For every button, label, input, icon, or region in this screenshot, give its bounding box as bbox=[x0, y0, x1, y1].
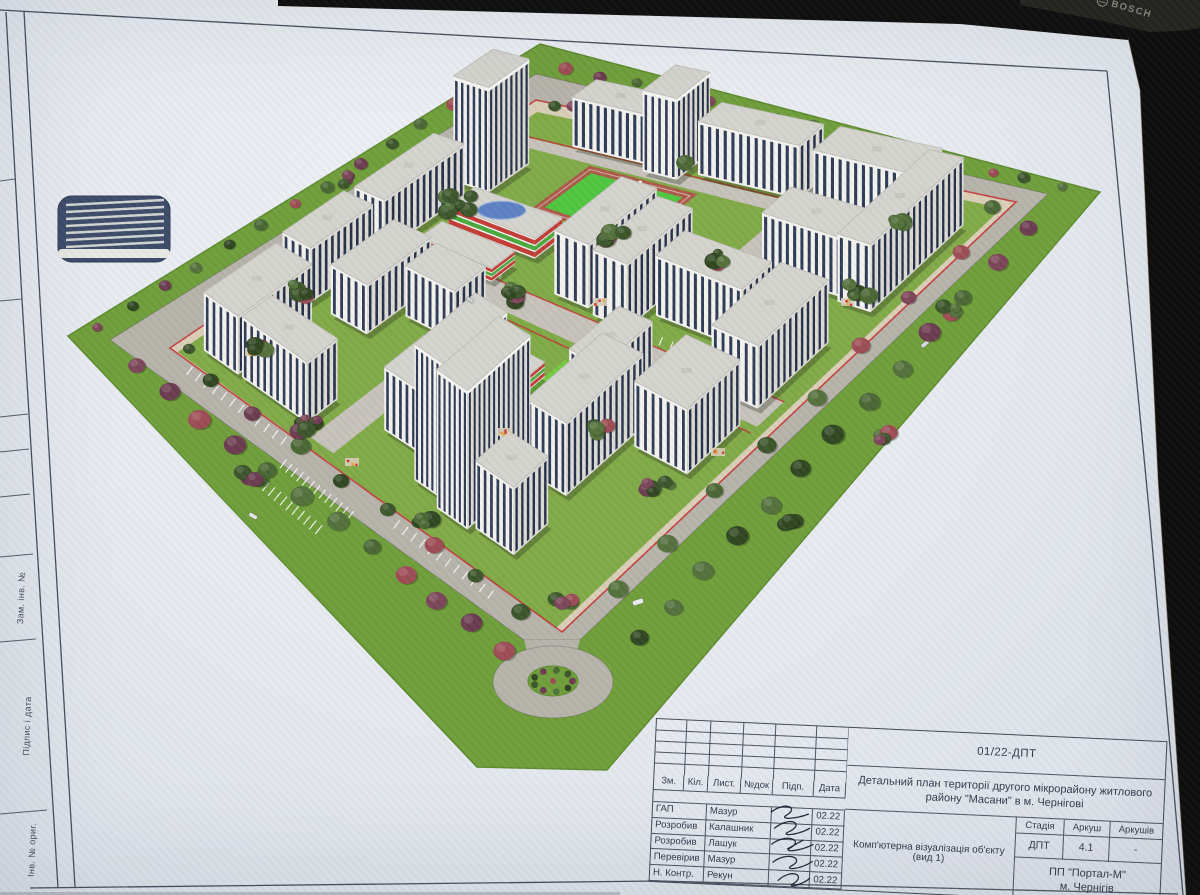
monitor-photo-scene: Зам. інв. № Підпис і дата Інв. № ориг. З… bbox=[0, 0, 1200, 895]
background-right-wedge bbox=[1128, 28, 1200, 895]
monitor-bezel bbox=[0, 0, 1200, 895]
